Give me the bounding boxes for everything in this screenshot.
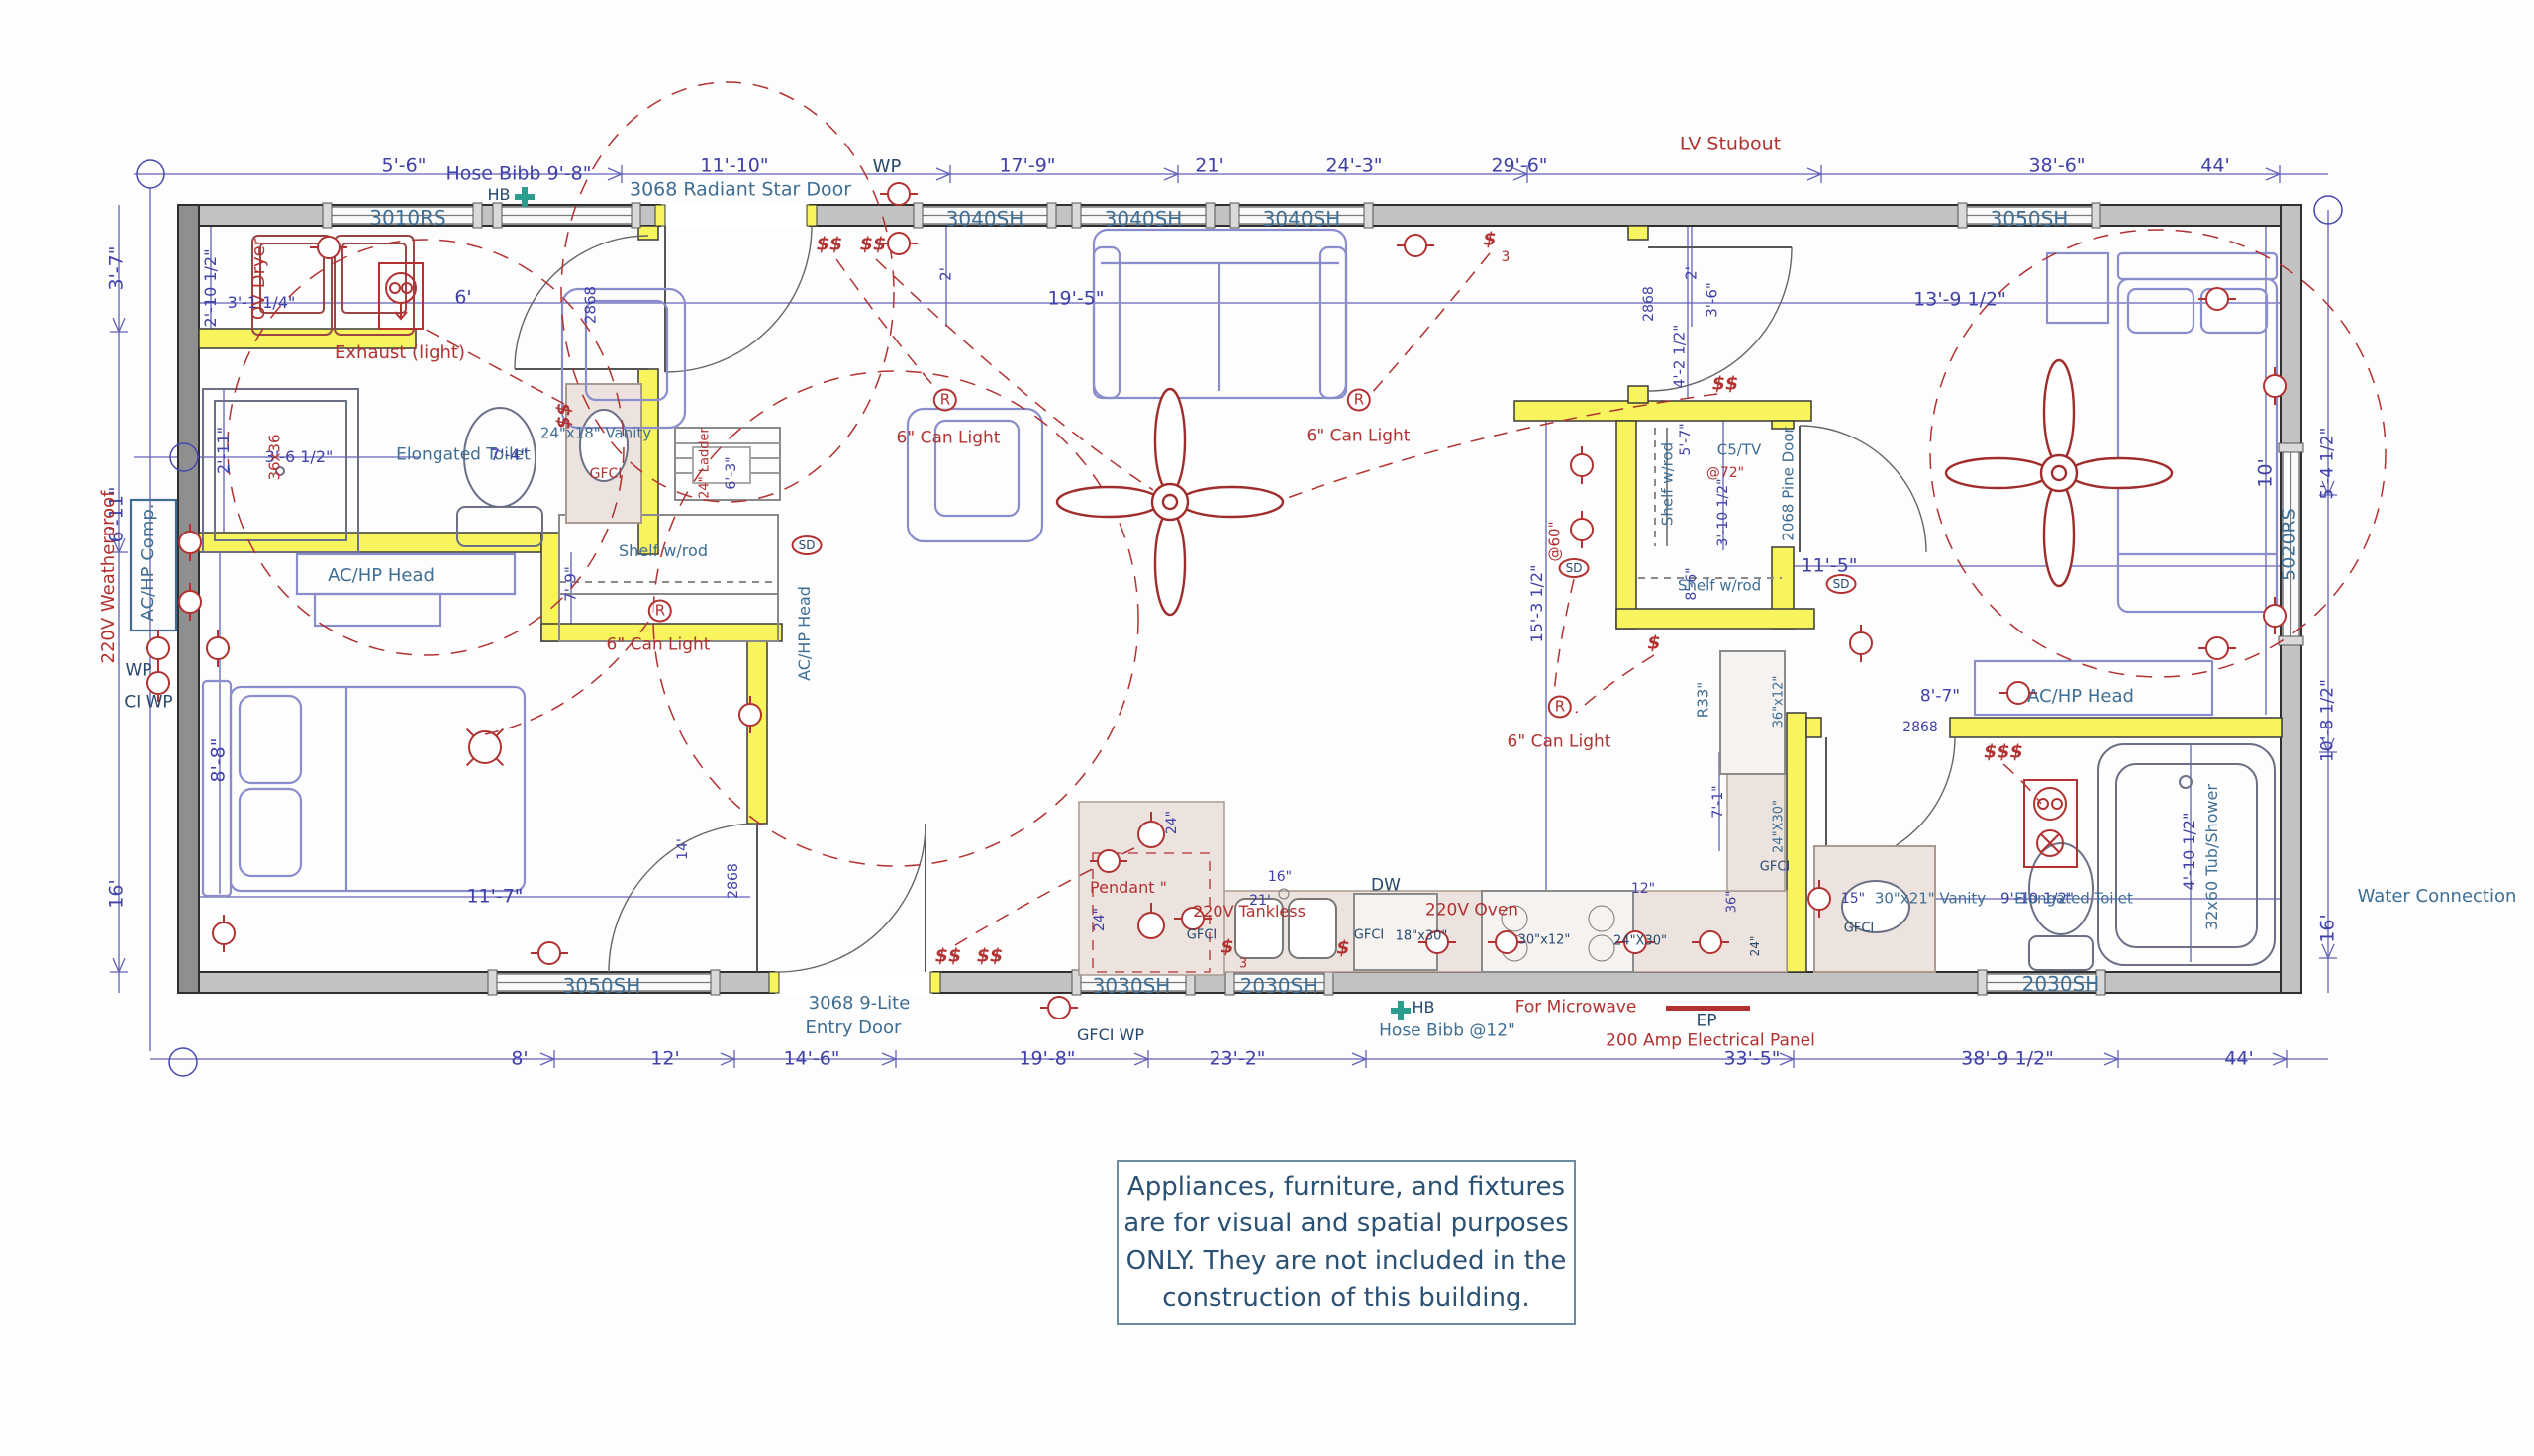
dishwasher [1354, 894, 1437, 970]
disclaimer-note: Appliances, furniture, and fixtures are … [1117, 1160, 1576, 1325]
outlet-icon [880, 233, 918, 254]
achp-compressor [131, 500, 176, 631]
outlet-icon [207, 630, 229, 667]
master-bath [1814, 744, 2275, 972]
bath-1 [203, 384, 780, 552]
windows [323, 203, 2303, 995]
tub-shower [2098, 744, 2275, 965]
note-line-2: are for visual and spatial purposes [1123, 1209, 1569, 1239]
electrical-panel-icon [1666, 1006, 1750, 1011]
ceiling-light-icon [467, 729, 504, 766]
hose-bibb-icon [1391, 1001, 1411, 1020]
bed2 [2118, 279, 2277, 612]
exhaust-fans [379, 263, 2077, 867]
outlet-icon [1850, 625, 1872, 662]
bed2-headboard [2118, 253, 2277, 279]
note-line-1: Appliances, furniture, and fixtures [1127, 1172, 1565, 1203]
exhaust-light-2 [2024, 780, 2077, 867]
note-line-3: ONLY. They are not included in the [1126, 1246, 1567, 1277]
armchair [908, 409, 1042, 541]
refrigerator [1720, 651, 1785, 774]
nightstand [2047, 253, 2108, 323]
note-line-4: construction of this building. [1162, 1283, 1529, 1313]
achp-head-unit-1 [297, 554, 515, 594]
floor-plan: 5'-6"Hose Bibb 9'-8"11'-10"WP17'-9"21'24… [0, 0, 2534, 1456]
outlet-icon [1571, 511, 1593, 548]
interior-walls [199, 226, 2282, 972]
ceiling-fan-icon [1057, 389, 1283, 615]
outlet-icon [1397, 235, 1434, 256]
outlet-icon [531, 942, 568, 964]
outlet-icon [1999, 682, 2037, 704]
outlet-icon [1040, 997, 1078, 1019]
bed1-headboard [203, 681, 231, 896]
reference-marker [169, 1048, 197, 1076]
outlet-icon [880, 183, 918, 205]
outlet-icon [213, 915, 235, 952]
outlet-icon [1571, 446, 1593, 484]
toilet-1 [464, 408, 536, 507]
kitchen-sink [1235, 899, 1283, 958]
exterior-walls [178, 205, 2301, 993]
toilet-2 [2029, 843, 2093, 934]
ceiling-fan-icon [1946, 360, 2172, 586]
furniture [131, 230, 2277, 896]
outlet-icon [2198, 637, 2236, 659]
shower-36x36 [203, 389, 358, 552]
